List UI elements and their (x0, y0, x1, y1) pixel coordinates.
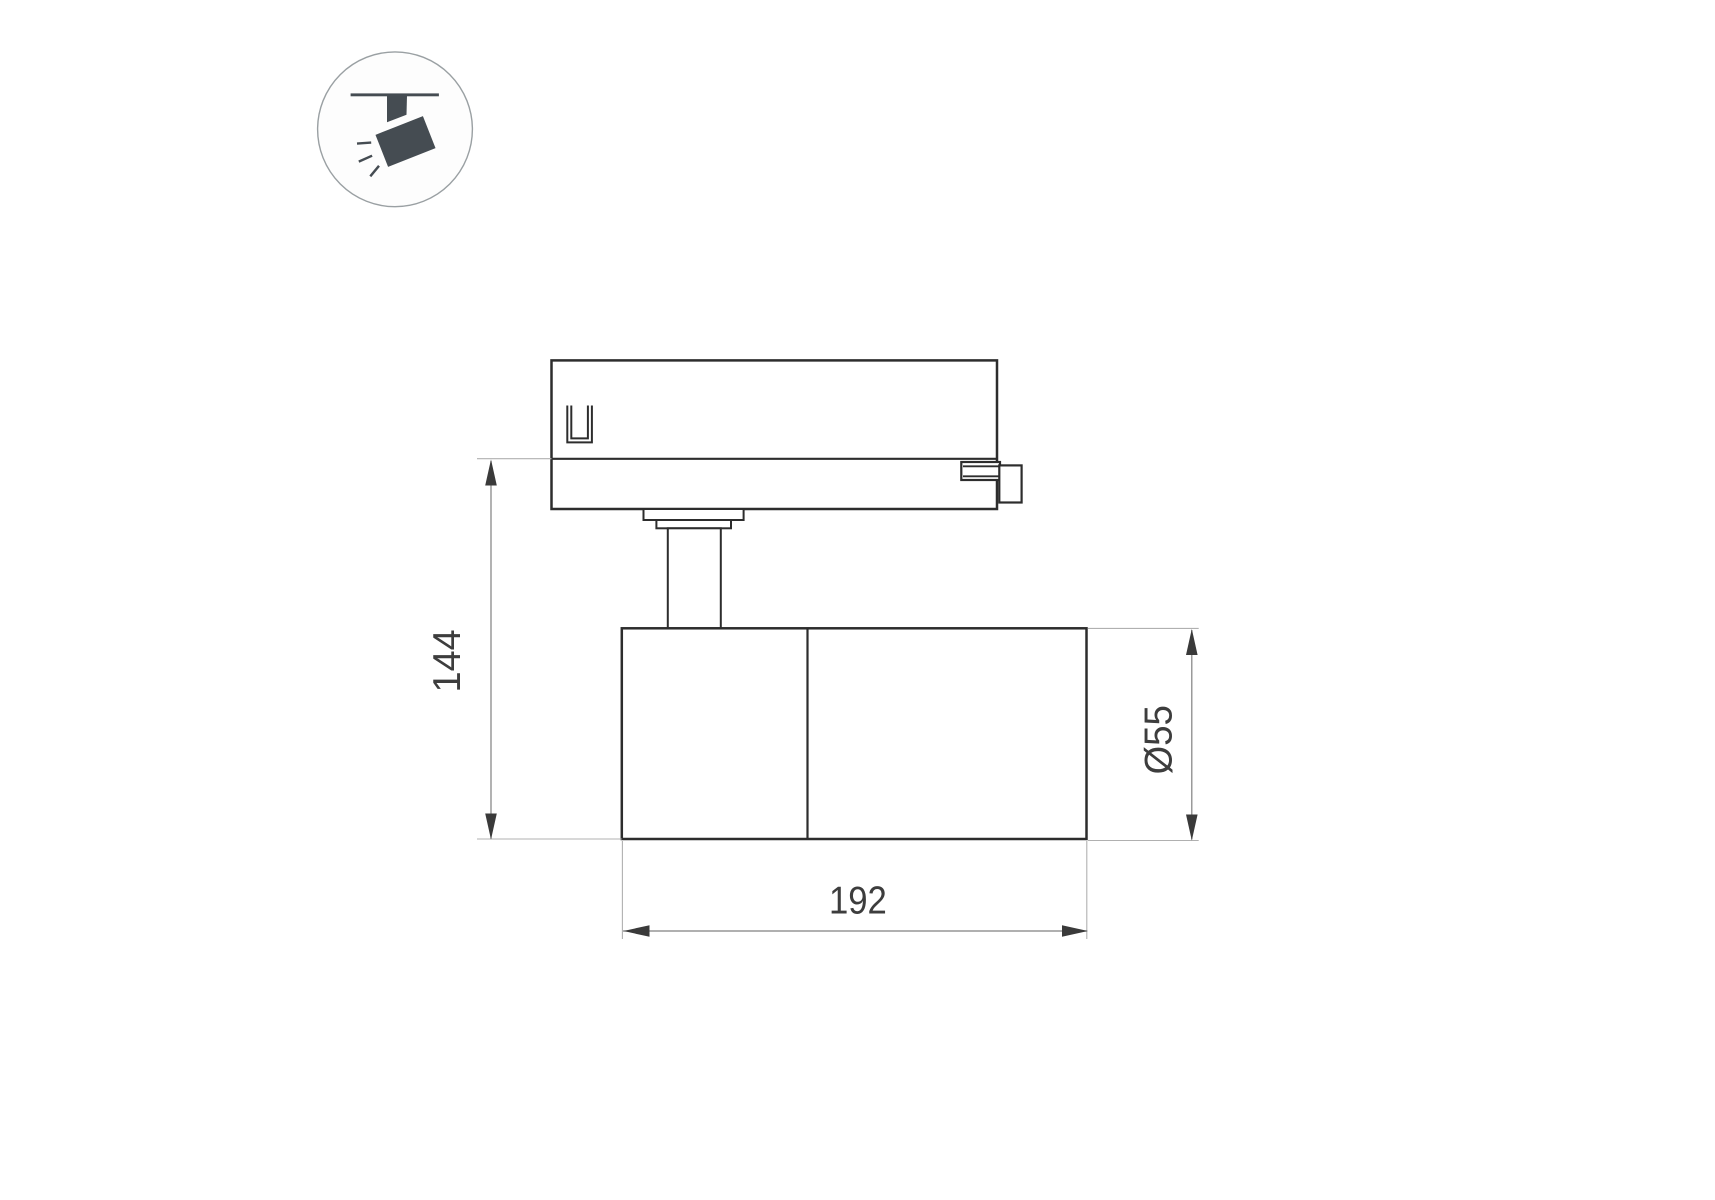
svg-text:144: 144 (426, 629, 470, 692)
svg-text:Ø55: Ø55 (1138, 705, 1181, 774)
svg-text:192: 192 (829, 879, 887, 922)
